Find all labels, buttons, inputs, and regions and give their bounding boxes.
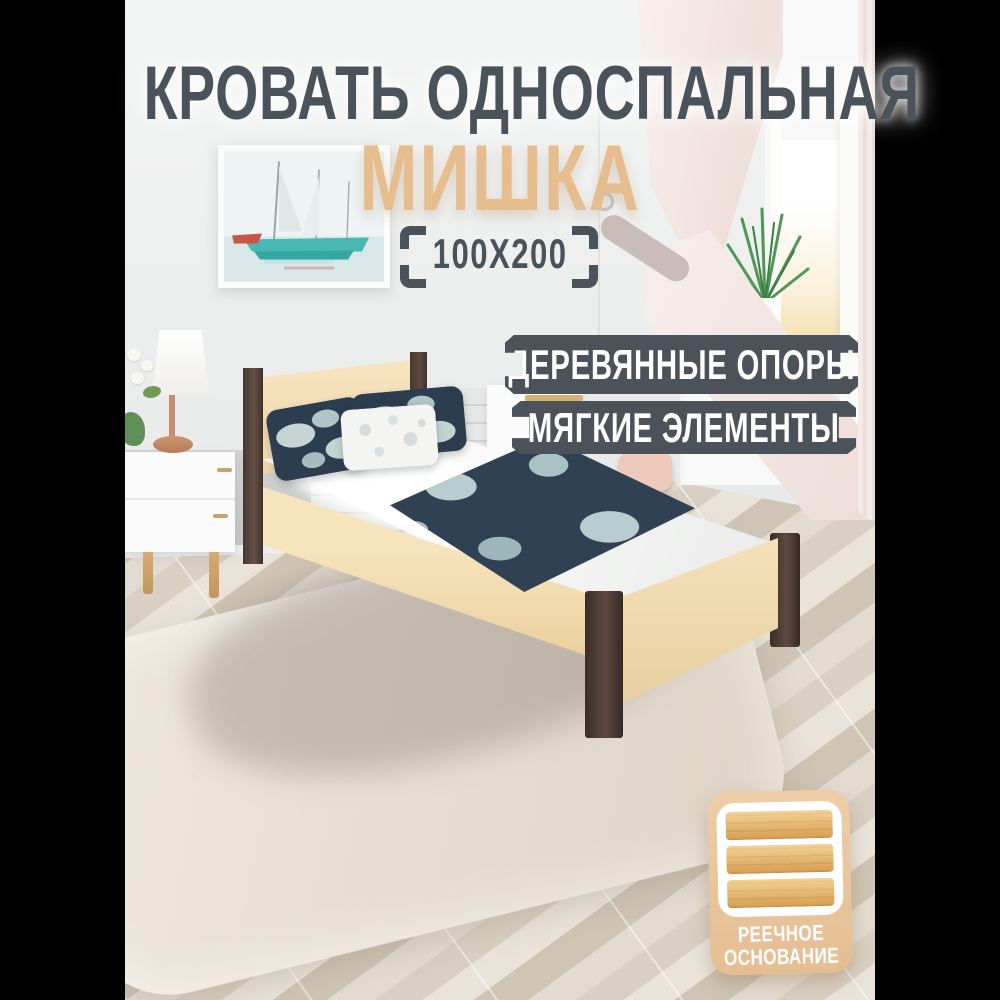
slatted-base-card: РЕЕЧНОЕ ОСНОВАНИЕ	[707, 789, 853, 975]
product-image: КРОВАТЬ ОДНОСПАЛЬНАЯ МИШКА 100X200 ДЕРЕВ…	[0, 0, 1000, 1000]
feature-badge-wooden-supports: ДЕРЕВЯННЫЕ ОПОРЫ	[505, 335, 858, 394]
drawer-handle	[213, 514, 228, 518]
wood-slat	[726, 844, 834, 874]
nightstand-leg	[143, 552, 153, 594]
bed-leg-near	[585, 591, 623, 738]
size-bracket-right-icon	[568, 226, 598, 288]
headboard-post-near	[243, 368, 263, 564]
feature-badge-label: ДЕРЕВЯННЫЕ ОПОРЫ	[508, 341, 855, 389]
feature-badge-soft-elements: МЯГКИЕ ЭЛЕМЕНТЫ	[512, 401, 856, 454]
size-label: 100X200	[0, 230, 1000, 278]
nightstand-leg	[209, 552, 219, 598]
orchid-flower	[141, 360, 153, 371]
table-lamp-stem	[169, 395, 175, 439]
wood-slat	[725, 810, 833, 840]
orchid-flower	[127, 348, 141, 361]
slatted-base-label: РЕЕЧНОЕ ОСНОВАНИЕ	[707, 920, 856, 970]
orchid-flower	[131, 372, 144, 384]
model-name: МИШКА	[0, 124, 1000, 232]
feature-badge-label: МЯГКИЕ ЭЛЕМЕНТЫ	[528, 404, 840, 452]
drawer-handle	[217, 468, 232, 472]
table-lamp-shade	[152, 330, 209, 396]
size-label-text: 100X200	[433, 230, 568, 278]
table-lamp-base	[153, 436, 193, 453]
drawer-seam	[125, 498, 235, 500]
model-name-text: МИШКА	[359, 124, 641, 232]
wood-slat	[726, 878, 834, 908]
bed-slats-icon	[716, 801, 844, 918]
slatted-base-line2: ОСНОВАНИЕ	[724, 944, 840, 970]
nightstand	[125, 452, 235, 552]
pillow-white-damask	[340, 404, 439, 471]
